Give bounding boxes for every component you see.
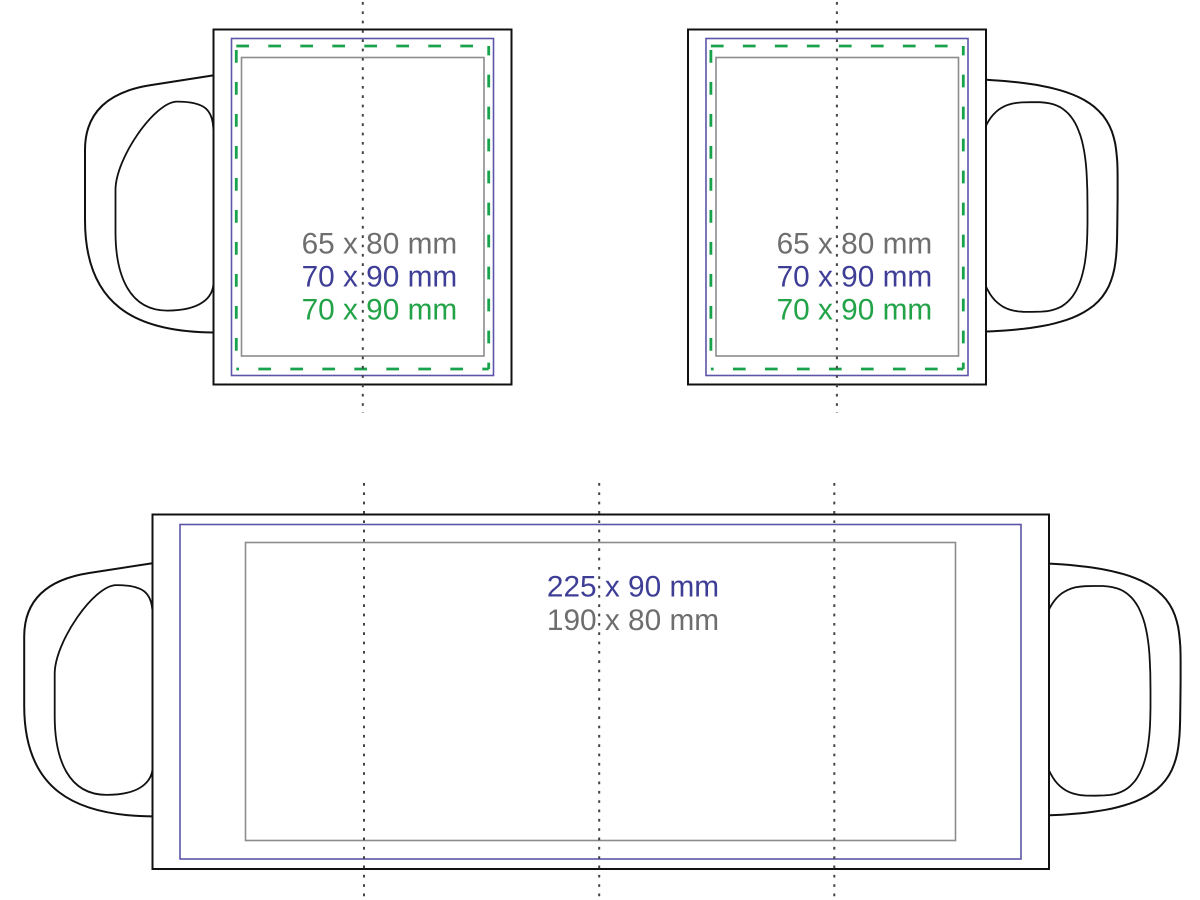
- svg-text:70 x 90 mm: 70 x 90 mm: [302, 261, 458, 294]
- svg-text:65 x 80 mm: 65 x 80 mm: [777, 227, 933, 260]
- svg-text:70 x 90 mm: 70 x 90 mm: [777, 294, 933, 327]
- svg-text:225 x 90 mm: 225 x 90 mm: [547, 570, 719, 603]
- svg-text:70 x 90 mm: 70 x 90 mm: [302, 294, 458, 327]
- svg-text:190 x 80 mm: 190 x 80 mm: [547, 604, 719, 637]
- svg-text:65 x 80 mm: 65 x 80 mm: [302, 227, 458, 260]
- svg-text:70 x 90 mm: 70 x 90 mm: [777, 261, 933, 294]
